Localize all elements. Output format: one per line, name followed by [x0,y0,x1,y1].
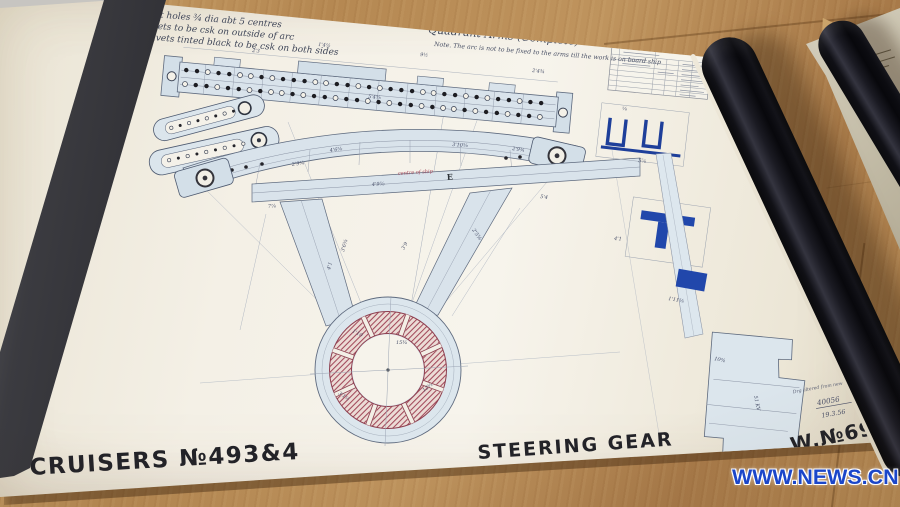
dimension-label: 9½ [420,51,429,59]
stamp-number: 40056 [815,394,840,407]
ship-number-title: CRUISERS №493&4 [29,439,301,481]
photo-stage: E centre of ship [0,0,900,507]
dimension-label: 3'10⅝ [452,142,468,149]
dimension-label: 15¾ [396,339,407,346]
dimension-label: 4'1 [613,236,622,243]
dimension-label: 5⅞ [638,158,647,165]
dimension-label: 2'4¾ [531,67,545,75]
channel-sections [596,103,690,167]
dimension-label: 3'9 [401,241,410,251]
right-arm [408,188,512,320]
beam-label: E [446,172,453,182]
dimension-label: 3'6⅝ [340,239,349,253]
dimension-label: 5'4 [540,194,549,201]
dimension-label: ⅝ [622,106,628,112]
dimension-label: 5'4⅝ [368,94,381,101]
news-watermark: WWW.NEWS.CN [732,466,899,490]
dimension-label: 4'9⅝ [371,181,385,188]
stamp-date: 19.3.56 [821,408,846,420]
cross-beam: E centre of ship [252,158,640,202]
dimension-label: 7⅞ [268,203,277,210]
